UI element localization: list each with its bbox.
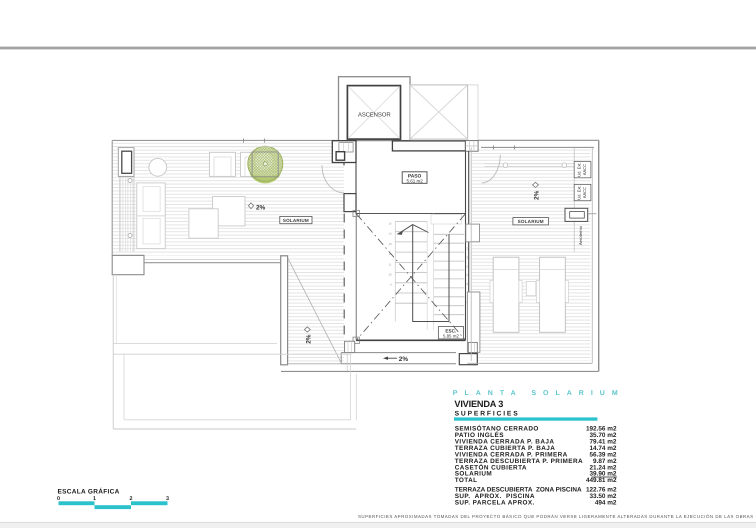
svg-text:SUPERFICIES APROXIMADAS TOMADA: SUPERFICIES APROXIMADAS TOMADAS DEL PROY…	[358, 514, 754, 519]
svg-text:3: 3	[166, 496, 169, 502]
svg-text:0: 0	[57, 496, 60, 502]
svg-text:449.81 m2: 449.81 m2	[586, 477, 617, 484]
svg-text:2: 2	[130, 496, 133, 502]
svg-text:15: 15	[389, 221, 393, 225]
svg-text:1: 1	[93, 496, 96, 502]
svg-text:Ud. Ext.: Ud. Ext.	[577, 185, 582, 200]
svg-text:2%: 2%	[256, 204, 266, 211]
svg-text:SUP. PARCELA APROX.: SUP. PARCELA APROX.	[455, 500, 535, 507]
svg-text:Ud. Ext.: Ud. Ext.	[577, 162, 582, 177]
svg-text:2%: 2%	[306, 334, 313, 344]
svg-text:5.61 m2: 5.61 m2	[406, 178, 423, 183]
svg-text:494 m2: 494 m2	[595, 500, 617, 507]
svg-text:AACC: AACC	[582, 164, 587, 175]
svg-text:14: 14	[389, 232, 393, 236]
svg-text:SUPERFICIES: SUPERFICIES	[455, 410, 520, 417]
svg-text:2%: 2%	[399, 356, 409, 363]
svg-text:13: 13	[389, 242, 393, 246]
svg-text:PLANTA SOLARIUM: PLANTA SOLARIUM	[453, 390, 625, 397]
svg-text:VIVIENDA 3: VIVIENDA 3	[454, 399, 503, 409]
svg-text:ESCALA GRÁFICA: ESCALA GRÁFICA	[58, 487, 120, 495]
svg-text:5.85 m2: 5.85 m2	[443, 334, 459, 339]
svg-text:AACC: AACC	[582, 187, 587, 198]
svg-text:ASCENSOR: ASCENSOR	[358, 112, 392, 119]
svg-text:SOLARIUM: SOLARIUM	[283, 218, 309, 223]
svg-text:SOLARIUM: SOLARIUM	[518, 219, 544, 224]
svg-text:11: 11	[389, 262, 392, 266]
svg-text:Aerotermo: Aerotermo	[578, 225, 583, 245]
svg-text:2%: 2%	[534, 190, 541, 200]
svg-text:TOTAL: TOTAL	[455, 477, 478, 484]
svg-text:10: 10	[389, 273, 393, 277]
